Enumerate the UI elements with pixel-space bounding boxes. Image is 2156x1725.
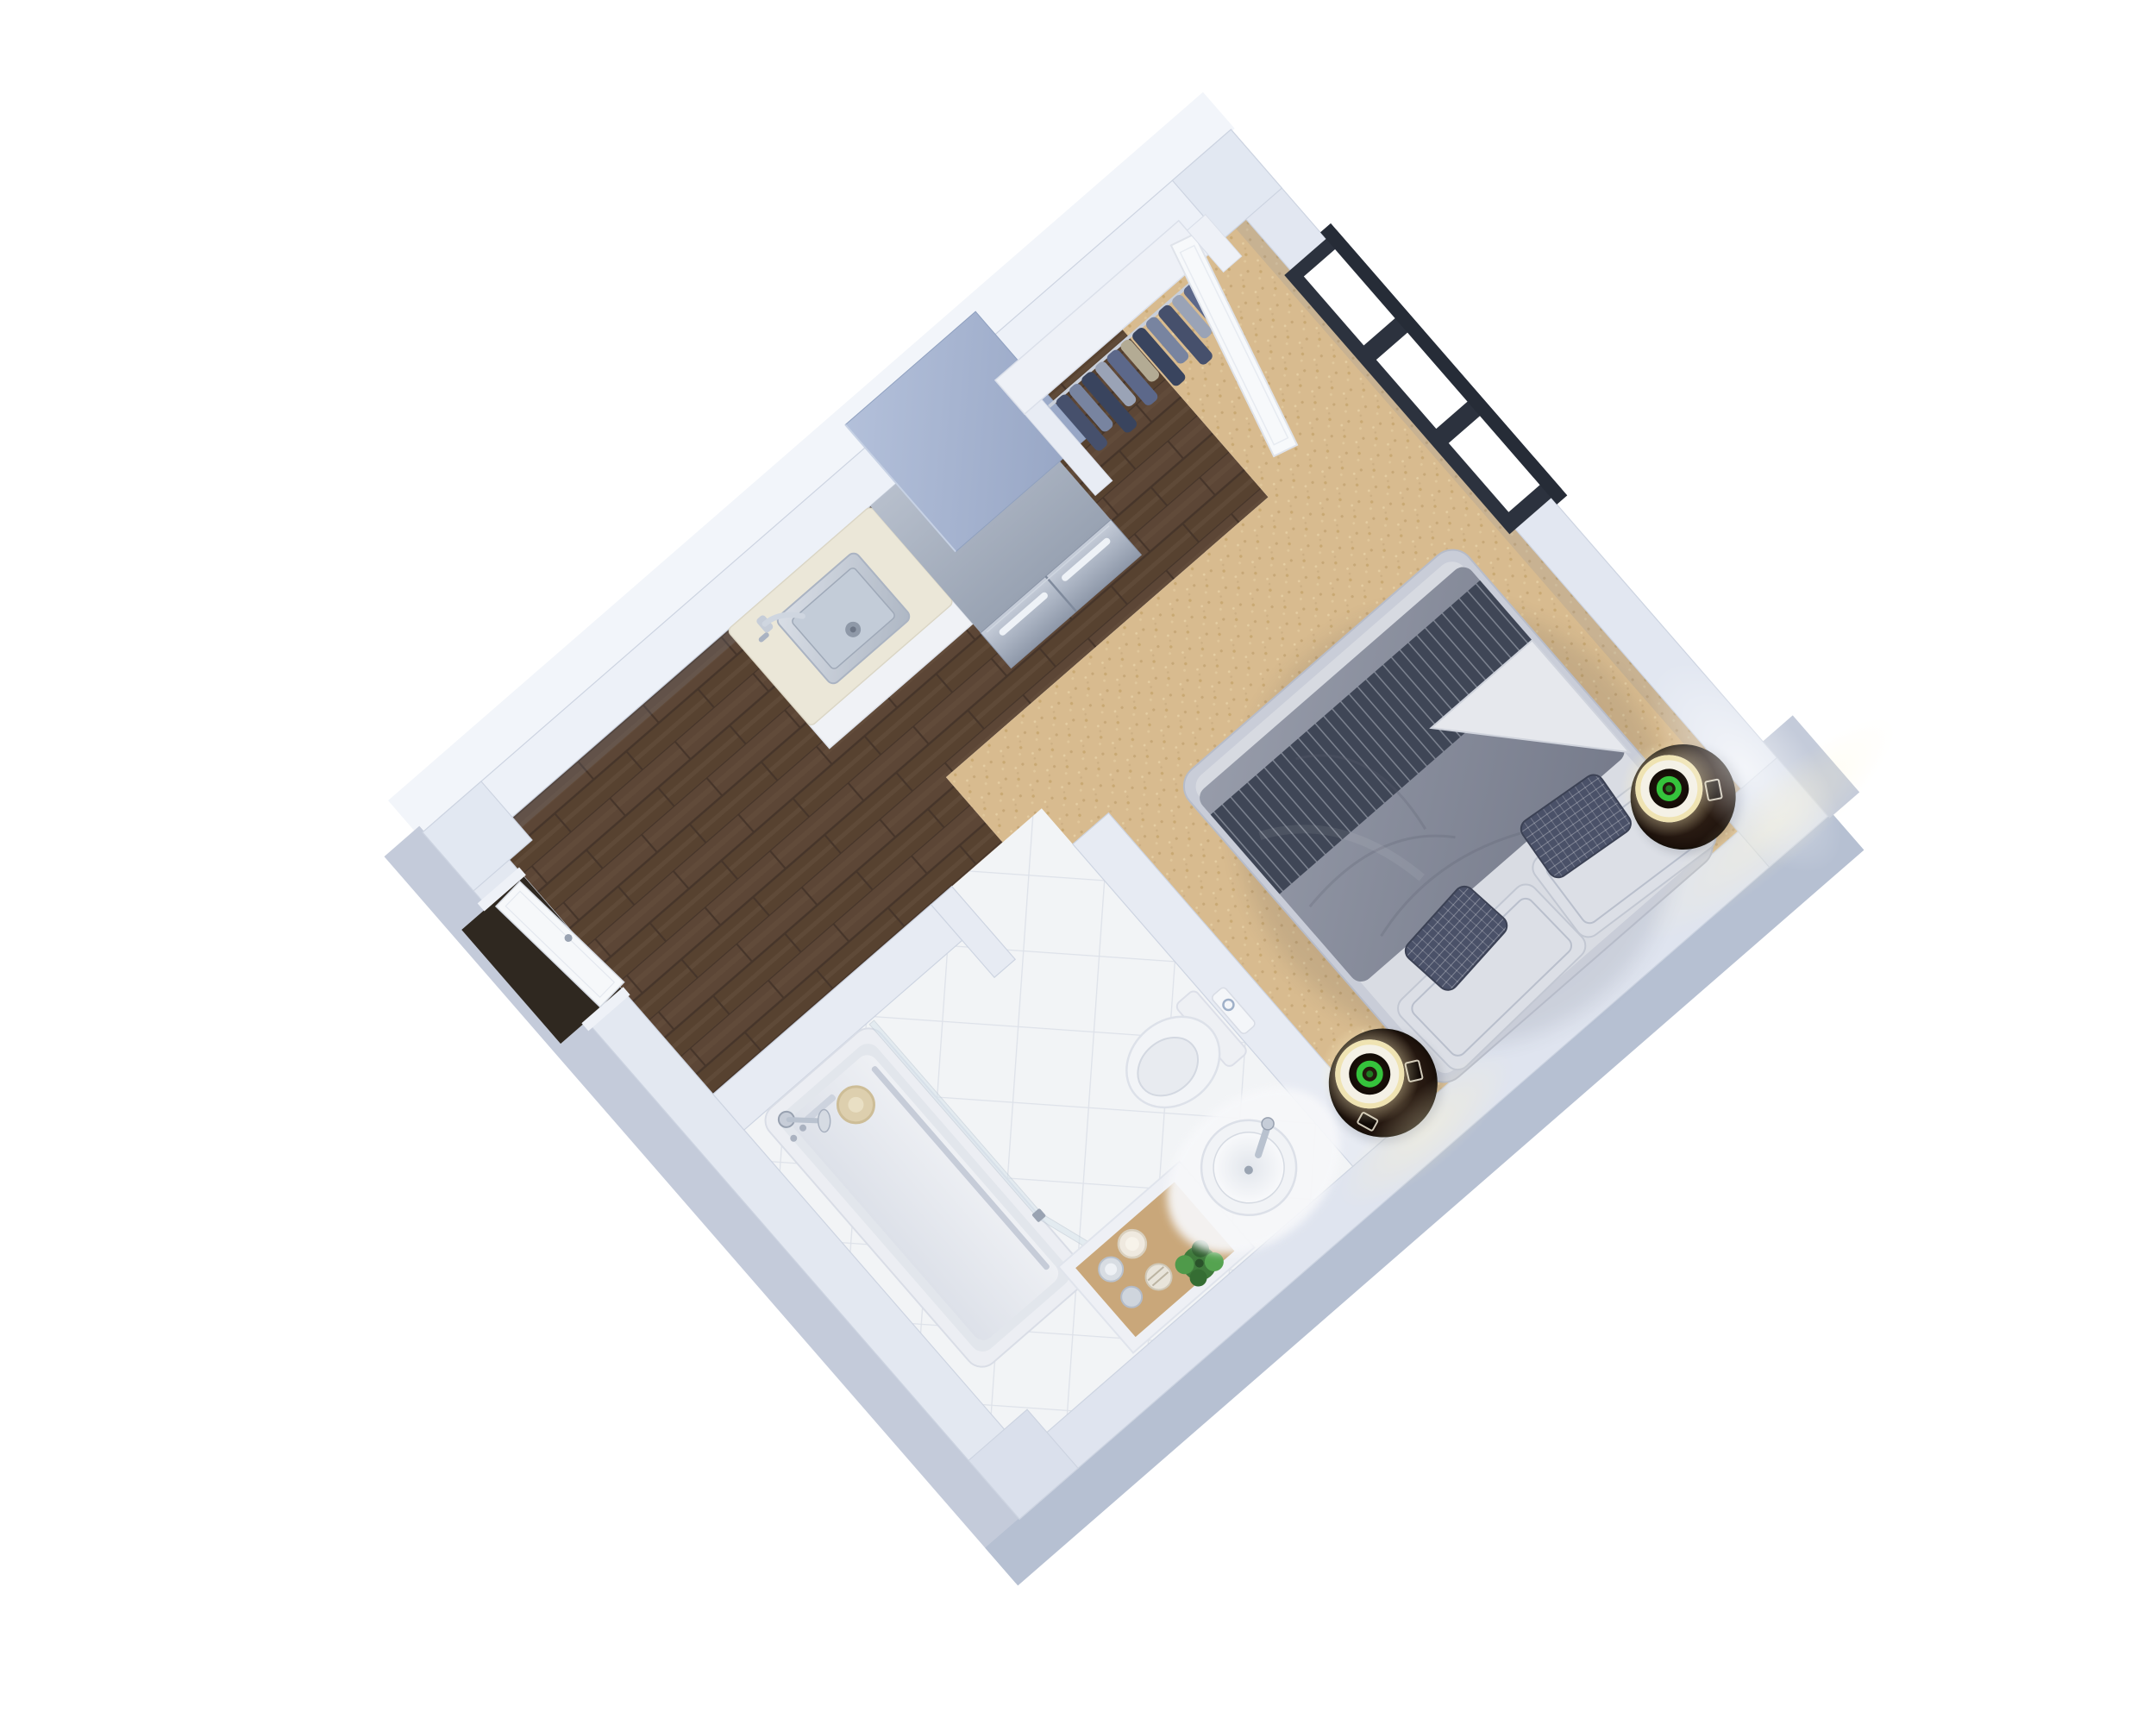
floorplan-stage <box>0 0 2156 1725</box>
apartment-scene <box>358 22 1943 1585</box>
studio-floorplan-3d-render <box>0 0 2156 1725</box>
